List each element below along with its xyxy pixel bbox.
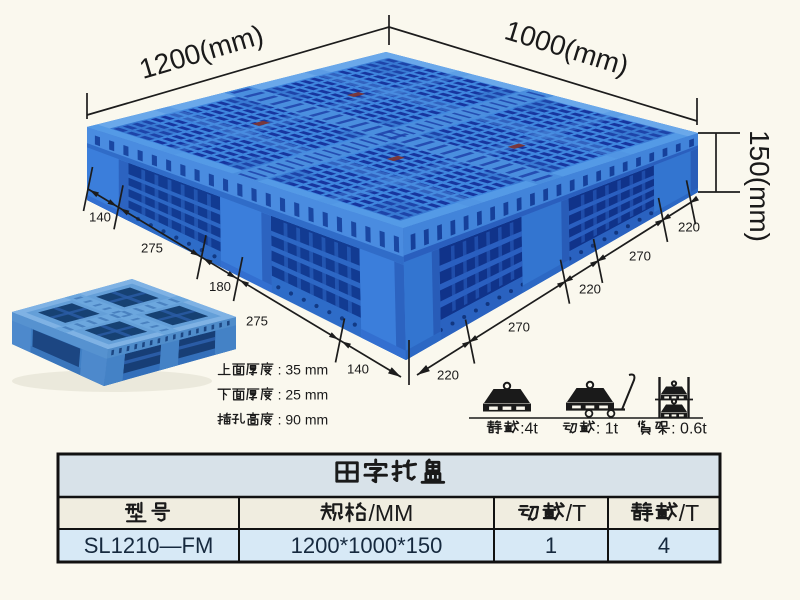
svg-text:140: 140 <box>347 362 369 377</box>
svg-text:/MM: /MM <box>369 500 414 526</box>
svg-text::4t: :4t <box>520 420 538 437</box>
svg-text:180: 180 <box>209 279 231 294</box>
svg-text:: 35 mm: : 35 mm <box>278 362 329 378</box>
svg-text:SL1210—FM: SL1210—FM <box>84 533 214 558</box>
svg-text:220: 220 <box>579 282 601 297</box>
svg-text:150(mm): 150(mm) <box>744 130 775 242</box>
svg-text:140: 140 <box>89 210 111 225</box>
svg-text:270: 270 <box>629 249 651 264</box>
svg-text:/T: /T <box>566 500 586 526</box>
svg-text:: 0.6t: : 0.6t <box>671 420 707 437</box>
svg-text:220: 220 <box>678 220 700 235</box>
svg-text:/T: /T <box>679 500 699 526</box>
svg-text:: 25 mm: : 25 mm <box>278 387 329 403</box>
svg-text:1200*1000*150: 1200*1000*150 <box>291 533 443 558</box>
svg-text:4: 4 <box>658 533 670 558</box>
svg-text:: 1t: : 1t <box>596 420 619 437</box>
svg-text:: 90 mm: : 90 mm <box>278 412 329 428</box>
svg-text:1: 1 <box>545 533 557 558</box>
svg-text:275: 275 <box>246 314 268 329</box>
svg-text:220: 220 <box>437 368 459 383</box>
svg-text:275: 275 <box>141 241 163 256</box>
svg-text:270: 270 <box>508 320 530 335</box>
